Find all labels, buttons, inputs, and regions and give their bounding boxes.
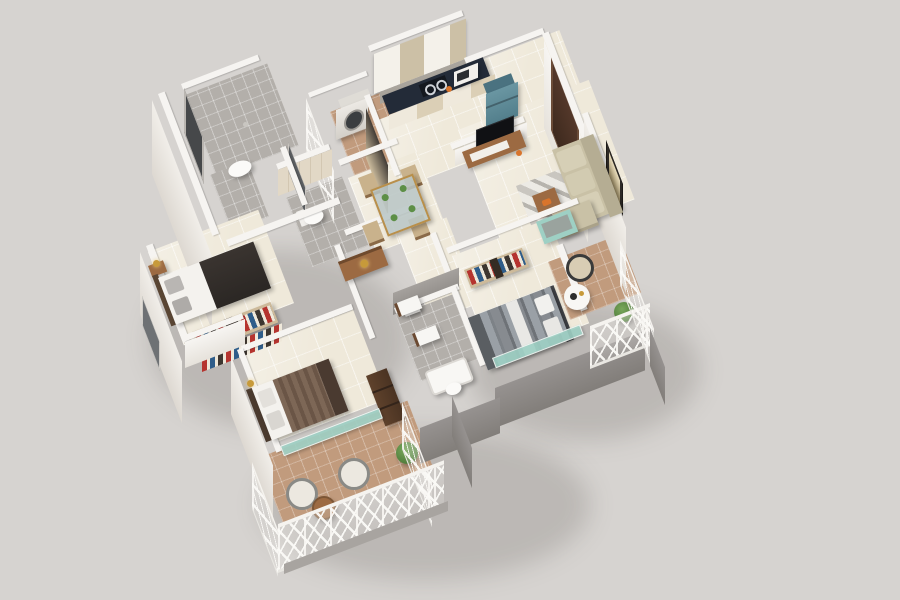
plate <box>570 293 577 300</box>
wicker-chair <box>338 458 370 490</box>
washer-door <box>344 106 364 134</box>
pillow <box>534 293 555 316</box>
floor-plan-render <box>0 0 900 600</box>
plate <box>407 204 416 213</box>
patio-table <box>564 284 590 310</box>
fridge-seam <box>486 95 518 109</box>
wardrobe-seam <box>379 401 400 411</box>
table-lamp <box>153 260 160 267</box>
shower-head <box>243 122 248 127</box>
microwave-window <box>457 69 469 82</box>
wardrobe-seam <box>372 384 393 394</box>
plate <box>381 193 390 202</box>
bench-cushion <box>541 214 573 238</box>
plate <box>399 184 408 193</box>
pillow <box>171 296 192 316</box>
pillow <box>164 275 185 295</box>
decor-lamp <box>359 259 369 269</box>
pillow <box>266 410 286 431</box>
plate <box>390 213 399 222</box>
plate <box>579 291 584 296</box>
pillow <box>257 387 277 408</box>
flower-pot <box>446 86 452 92</box>
wicker-chair <box>566 254 594 282</box>
table-lamp <box>247 380 254 387</box>
vase <box>516 150 522 156</box>
tray <box>541 198 552 207</box>
